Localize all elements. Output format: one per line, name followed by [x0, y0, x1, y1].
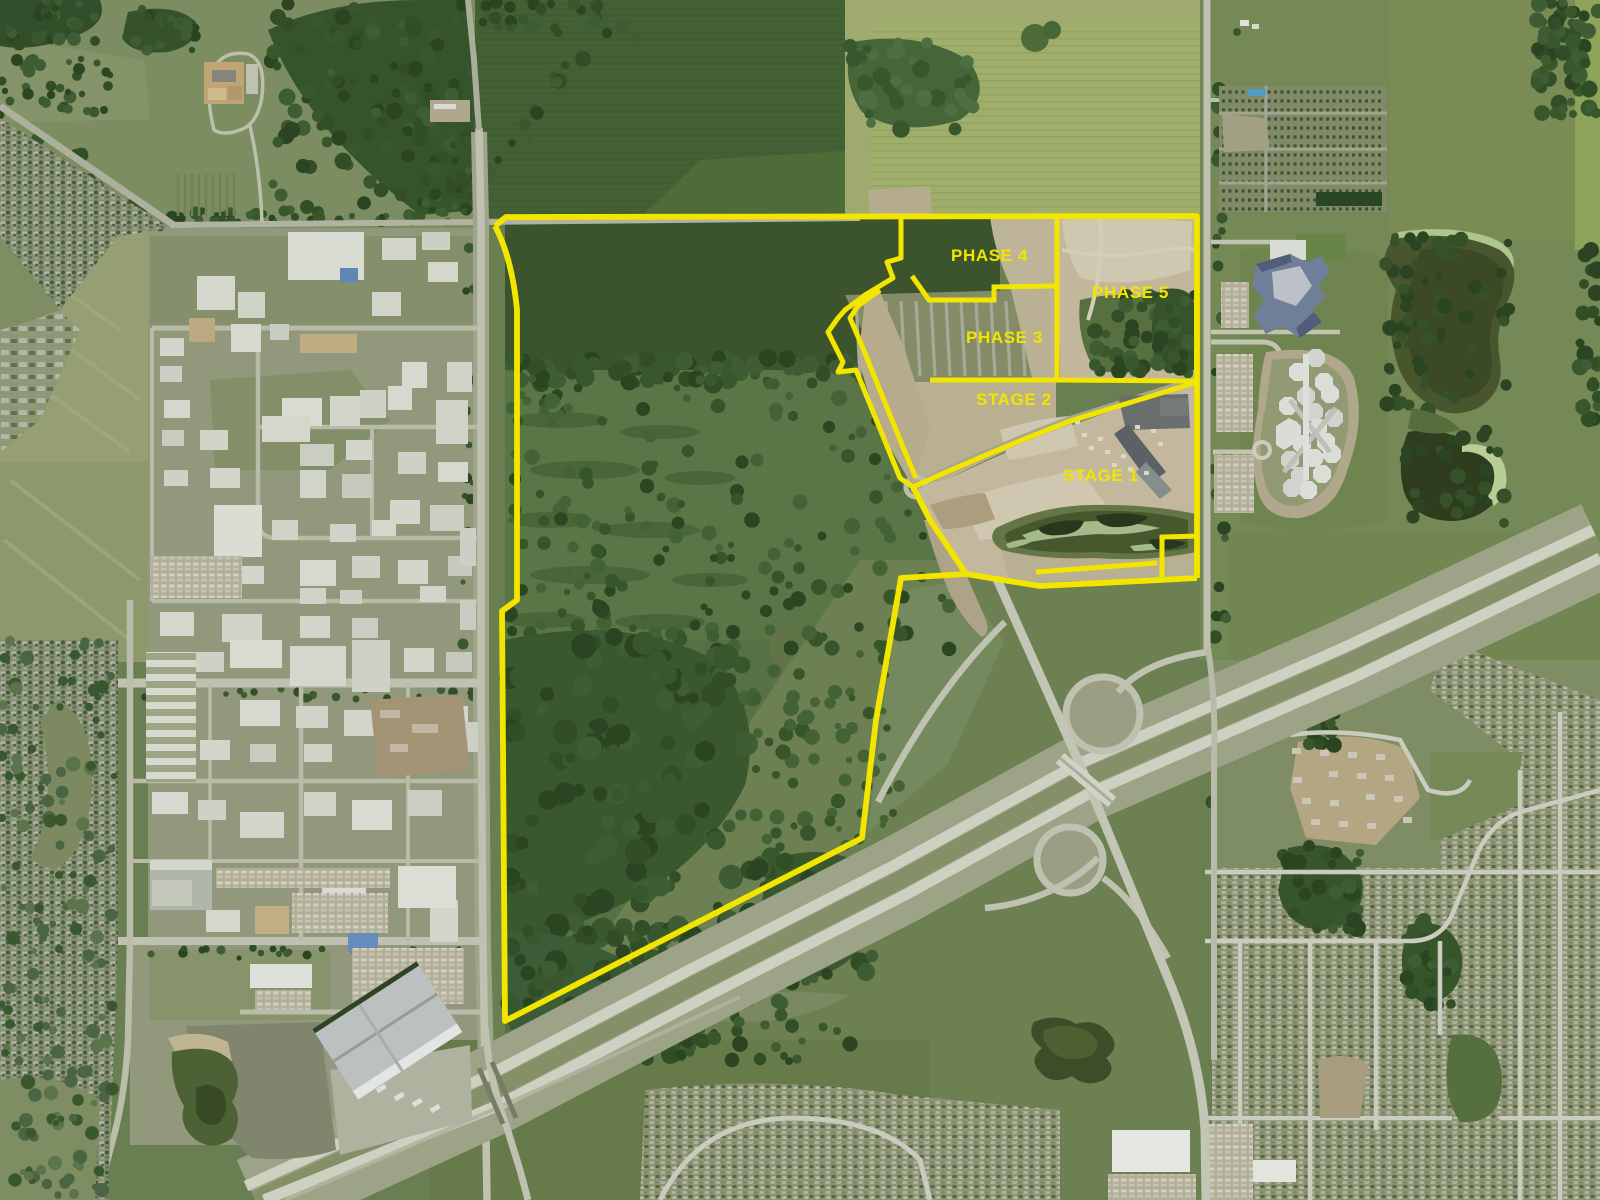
svg-text:PHASE 3: PHASE 3 — [966, 328, 1043, 347]
svg-text:STAGE 1: STAGE 1 — [1063, 466, 1139, 485]
svg-text:PHASE 5: PHASE 5 — [1092, 283, 1169, 302]
svg-text:STAGE 2: STAGE 2 — [976, 390, 1052, 409]
svg-text:PHASE 4: PHASE 4 — [951, 246, 1028, 265]
